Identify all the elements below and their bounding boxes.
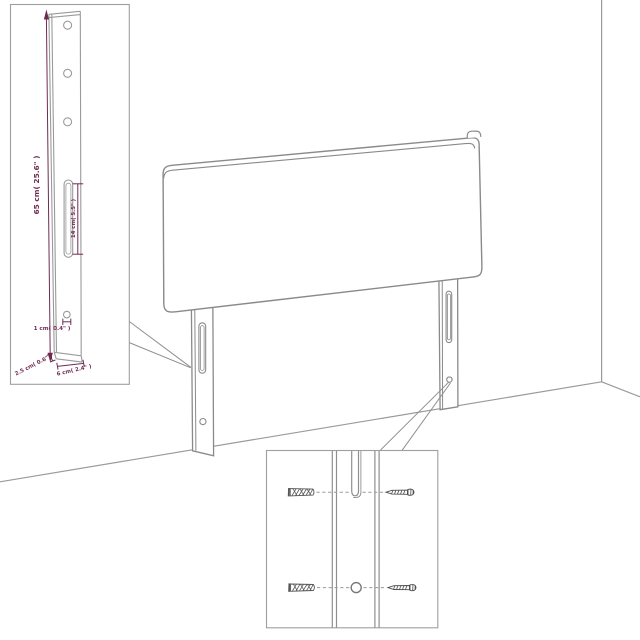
callout-lines-left bbox=[129, 322, 191, 368]
callout-line bbox=[380, 382, 448, 450]
mounting-hole bbox=[200, 419, 206, 425]
hardware-inset bbox=[267, 451, 438, 628]
hole-diameter-label: 1 cm( 0.4" ) bbox=[34, 326, 71, 332]
floor-line-right bbox=[602, 382, 640, 397]
callout-line bbox=[402, 383, 450, 450]
diagram-canvas: 65 cm( 25.6" ) 14 cm( 5.5" ) 1 cm( 0.4" … bbox=[0, 0, 640, 640]
slot-length-label: 14 cm( 5.5" ) bbox=[71, 199, 77, 238]
headboard-face bbox=[163, 138, 482, 312]
headboard-diagram: 65 cm( 25.6" ) 14 cm( 5.5" ) 1 cm( 0.4" … bbox=[0, 0, 640, 640]
mounting-hole bbox=[64, 118, 72, 126]
leg-height-label: 65 cm( 25.6" ) bbox=[32, 156, 41, 215]
mounting-slot bbox=[199, 323, 206, 373]
mounting-slot bbox=[446, 291, 452, 342]
small-mounting-hole bbox=[64, 311, 71, 318]
headboard bbox=[163, 131, 482, 312]
headboard-top-corner-tab bbox=[467, 131, 481, 138]
headboard-leg-left bbox=[191, 293, 213, 456]
mounting-hole bbox=[351, 583, 361, 593]
leg-detail-inset: 65 cm( 25.6" ) 14 cm( 5.5" ) 1 cm( 0.4" … bbox=[11, 5, 130, 385]
callout-line bbox=[129, 322, 191, 368]
mounting-hole bbox=[64, 21, 72, 29]
mounting-hole bbox=[447, 377, 452, 382]
mounting-hole bbox=[64, 69, 72, 77]
callout-line bbox=[129, 343, 191, 368]
